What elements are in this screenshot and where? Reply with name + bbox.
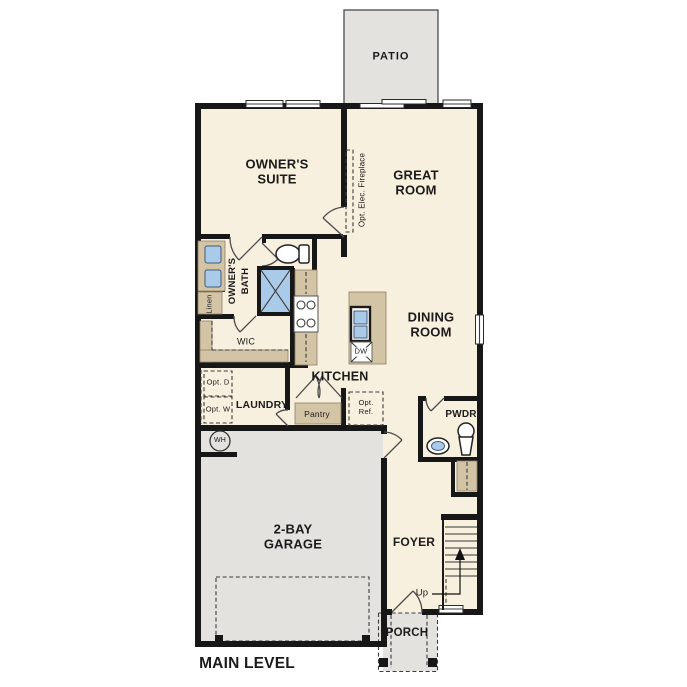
bath-vanity: [198, 241, 225, 291]
garage-label: 2-BAY GARAGE: [252, 522, 334, 553]
pwdr-label: PWDR: [445, 409, 476, 421]
laundry-label: LAUNDRY: [236, 399, 288, 411]
porch-label: PORCH: [386, 627, 429, 641]
floor-plan: PATIO OWNER'S SUITE GREAT ROOM Opt. Elec…: [0, 0, 687, 687]
water-heater-label: WH: [214, 437, 226, 445]
owners-suite-label: OWNER'S SUITE: [227, 157, 327, 188]
opt-dryer-label: Opt. D: [205, 379, 231, 388]
plan-title: MAIN LEVEL: [199, 655, 295, 673]
shower: [259, 268, 292, 314]
opt-washer-label: Opt. W: [205, 406, 231, 415]
dining-room-label: DINING ROOM: [395, 310, 467, 341]
great-room-label: GREAT ROOM: [380, 168, 452, 199]
fireplace-label: Opt. Elec. Fireplace: [357, 153, 366, 227]
coat-closet: [457, 461, 477, 491]
linen-label: Linen: [206, 294, 215, 313]
foyer-label: FOYER: [393, 535, 435, 549]
opt-ref-label: Opt. Ref.: [353, 399, 379, 417]
up-label: Up: [416, 587, 429, 598]
dishwasher-label: DW: [354, 348, 369, 357]
owners-bath-label: OWNER'S BATH: [227, 253, 253, 309]
pantry-label: Pantry: [304, 409, 330, 419]
wic-label: WIC: [237, 337, 255, 348]
kitchen-label: KITCHEN: [312, 370, 369, 385]
toilet: [276, 245, 309, 263]
patio-label: PATIO: [373, 51, 410, 64]
floor-plan-drawing: [0, 0, 687, 687]
range: [294, 296, 318, 332]
